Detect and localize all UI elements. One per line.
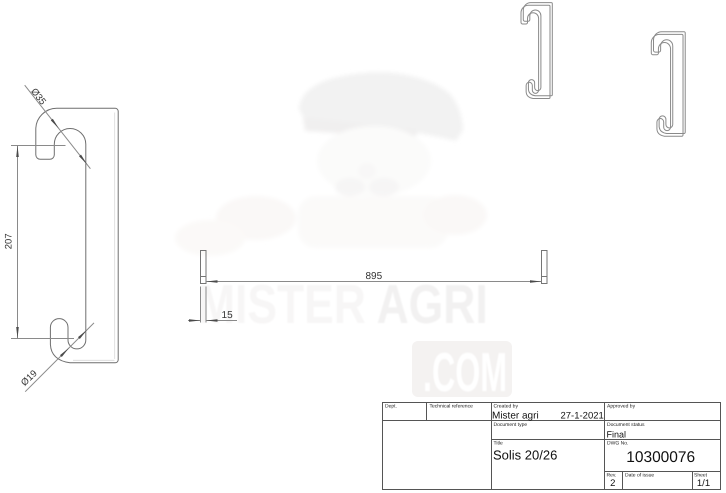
svg-text:Document type: Document type	[494, 422, 528, 428]
svg-text:Technical reference: Technical reference	[430, 404, 474, 410]
svg-text:MISTER AGRI: MISTER AGRI	[198, 273, 488, 335]
svg-text:2: 2	[610, 478, 615, 489]
svg-text:Document status: Document status	[607, 422, 645, 428]
svg-text:DWG No.: DWG No.	[607, 440, 628, 446]
svg-text:895: 895	[365, 271, 382, 282]
svg-text:10300076: 10300076	[626, 449, 695, 466]
svg-text:Mister agri: Mister agri	[492, 411, 539, 422]
svg-text:Title: Title	[494, 440, 503, 446]
svg-text:207: 207	[3, 233, 14, 249]
svg-text:Solis 20/26: Solis 20/26	[493, 448, 557, 463]
svg-text:Dept.: Dept.	[385, 404, 397, 410]
svg-text:.COM: .COM	[423, 341, 507, 403]
svg-text:15: 15	[222, 310, 234, 321]
svg-text:Final: Final	[607, 429, 627, 439]
svg-text:27-1-2021: 27-1-2021	[560, 411, 603, 422]
svg-text:Date of issue: Date of issue	[625, 473, 654, 479]
svg-text:Created by: Created by	[494, 404, 519, 410]
svg-text:1/1: 1/1	[697, 478, 710, 489]
svg-text:Approved by: Approved by	[607, 404, 636, 410]
